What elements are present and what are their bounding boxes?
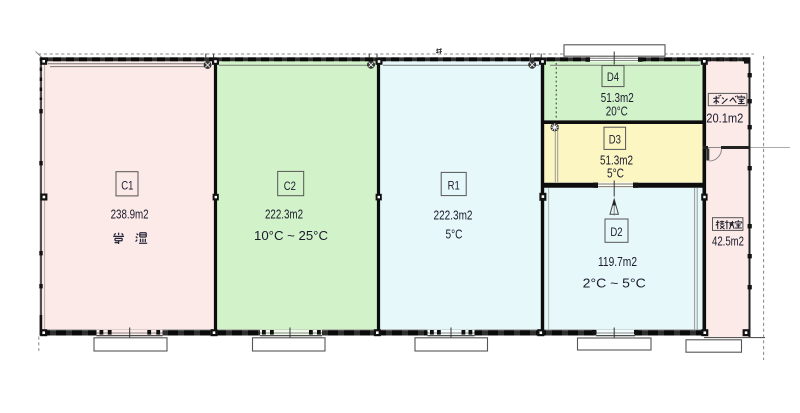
svg-text:D4: D4: [607, 70, 620, 84]
svg-text:10°C ~ 25°C: 10°C ~ 25°C: [254, 229, 328, 243]
svg-text:5°C: 5°C: [607, 167, 624, 181]
svg-text:2°C ~ 5°C: 2°C ~ 5°C: [583, 276, 646, 290]
svg-text:D3: D3: [609, 132, 622, 146]
svg-text:222.3m2: 222.3m2: [434, 209, 473, 223]
svg-text:C1: C1: [121, 179, 133, 193]
svg-text:R1: R1: [448, 179, 460, 193]
svg-text:42.5m2: 42.5m2: [712, 235, 744, 249]
svg-text:5°C: 5°C: [446, 227, 463, 241]
svg-text:20.1m2: 20.1m2: [706, 111, 743, 125]
svg-text:51.3m2: 51.3m2: [601, 91, 634, 105]
svg-text:20°C: 20°C: [606, 105, 628, 119]
svg-text:222.3m2: 222.3m2: [265, 208, 303, 222]
svg-text:238.9m2: 238.9m2: [111, 208, 149, 222]
svg-text:51.3m2: 51.3m2: [600, 153, 633, 167]
svg-text:119.7m2: 119.7m2: [598, 255, 637, 269]
svg-text:C2: C2: [284, 179, 296, 193]
svg-text:D2: D2: [610, 225, 622, 239]
